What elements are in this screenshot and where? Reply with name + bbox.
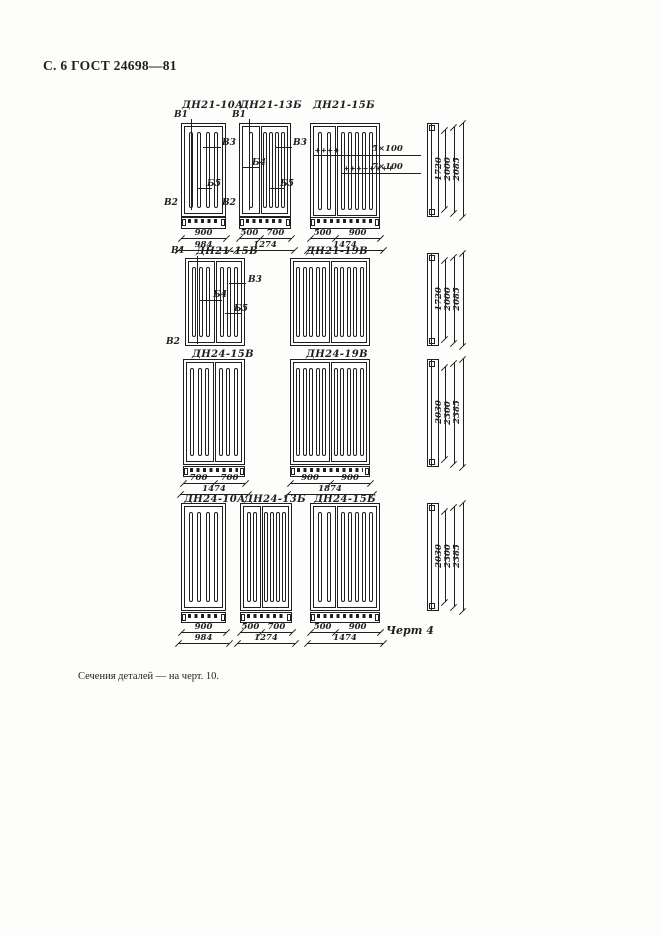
door-panel-slat <box>318 132 322 210</box>
door-label-dn21-15v: ДН21-15В <box>196 246 258 257</box>
plan-end-block <box>375 219 379 226</box>
section-mark-label: В2 <box>166 337 180 347</box>
height-dim-value: 2385 <box>452 392 462 432</box>
door-leaf <box>293 261 330 343</box>
door-leaf <box>188 261 215 343</box>
door-panel-slat <box>309 267 313 337</box>
overall-width-dim-value: 1874 <box>318 484 342 494</box>
profile-inner-line <box>431 124 432 216</box>
door-panel-slat <box>340 267 344 337</box>
dim-tick <box>450 461 457 468</box>
overall-width-dim-value: 1474 <box>202 484 226 494</box>
door-panel-slat <box>214 512 218 602</box>
door-panel-slat <box>360 267 364 337</box>
door-leaf <box>337 506 377 608</box>
door-panel-slat <box>309 368 313 456</box>
footnote-text: Сечения деталей — на черт. 10. <box>78 671 219 682</box>
door-panel-slat <box>353 368 357 456</box>
door-panel-slat <box>263 132 267 208</box>
door-panel-slat <box>269 132 273 208</box>
leaf-width-dim-value: 500 <box>241 228 259 238</box>
door-panel-slat <box>197 132 201 208</box>
door-drawing-dn21-19v <box>290 258 370 346</box>
overall-width-dim-line <box>307 643 383 644</box>
section-mark-label: В1 <box>174 110 188 120</box>
section-mark-label: Б4 <box>252 158 266 168</box>
plan-hatch <box>188 219 219 223</box>
door-panel-slat <box>303 267 307 337</box>
door-panel-slat <box>206 267 210 337</box>
dim-tick <box>459 343 466 350</box>
leaf-width-dim-value: 700 <box>221 473 239 483</box>
plan-end-block <box>182 219 186 226</box>
leaf-width-dim-value: 500 <box>314 228 332 238</box>
dim-tick <box>226 640 233 647</box>
door-leaf <box>184 126 223 214</box>
section-mark-line <box>191 119 192 210</box>
leaf-width-dim-value: 700 <box>268 622 286 632</box>
door-leaf <box>293 362 330 462</box>
dim-tick <box>450 210 457 217</box>
door-leaf <box>243 506 261 608</box>
plan-hatch <box>247 614 285 618</box>
dim-tick <box>377 235 384 242</box>
plan-end-block <box>241 614 245 621</box>
door-panel-slat <box>206 132 210 208</box>
door-panel-slat <box>341 512 345 602</box>
section-mark-line <box>197 256 198 344</box>
door-panel-slat <box>296 368 300 456</box>
door-panel-slat <box>199 267 203 337</box>
door-panel-slat <box>347 267 351 337</box>
height-dim-value: 2085 <box>452 279 462 319</box>
dim-tick <box>459 608 466 615</box>
door-leaf <box>261 126 288 214</box>
dim-tick <box>289 629 296 636</box>
door-panel-slat <box>227 267 231 337</box>
door-leaf <box>215 362 243 462</box>
dim-tick <box>450 340 457 347</box>
door-panel-slat <box>334 368 338 456</box>
height-dim-line <box>463 359 464 467</box>
door-panel-slat <box>226 368 230 456</box>
dim-tick <box>223 235 230 242</box>
door-panel-slat <box>214 132 218 208</box>
dim-tick <box>450 604 457 611</box>
plan-hatch <box>297 468 363 472</box>
door-panel-slat <box>281 132 285 208</box>
height-dim-line <box>463 253 464 346</box>
plan-end-block <box>240 219 244 226</box>
dim-tick <box>367 480 374 487</box>
overall-width-dim-value: 1274 <box>254 633 278 643</box>
door-panel-slat <box>316 368 320 456</box>
overall-width-dim-line <box>237 643 295 644</box>
dim-tick <box>288 235 295 242</box>
dim-tick <box>291 247 298 254</box>
leaf-width-dim-line <box>239 238 291 239</box>
dim-tick <box>441 599 448 606</box>
section-mark-label: Б5 <box>234 304 248 314</box>
section-mark-line <box>229 283 246 284</box>
door-panel-slat <box>276 512 280 602</box>
dim-tick <box>242 480 249 487</box>
plan-hatch <box>317 614 373 618</box>
section-mark-label: Б4 <box>213 290 227 300</box>
plan-hatch <box>190 468 238 472</box>
profile-top-block <box>429 361 435 367</box>
door-panel-slat <box>282 512 286 602</box>
leaf-width-dim-value: 900 <box>349 228 367 238</box>
door-panel-slat <box>264 512 268 602</box>
door-drawing-dn24-10a <box>181 503 226 611</box>
dim-tick <box>292 640 299 647</box>
leaf-width-dim-value: 900 <box>349 622 367 632</box>
door-panel-slat <box>327 512 331 602</box>
section-mark-label: Б5 <box>280 179 294 189</box>
door-panel-slat <box>247 512 251 602</box>
section-mark-line <box>342 173 421 174</box>
leaf-width-dim-value: 900 <box>195 228 213 238</box>
leaf-width-dim-value: 900 <box>301 473 319 483</box>
figure-caption: Черт 4 <box>386 624 434 637</box>
plan-end-block <box>375 614 379 621</box>
door-panel-slat <box>348 512 352 602</box>
profile-bottom-block <box>429 603 435 609</box>
nail-tick-marks: ++++ <box>315 147 340 155</box>
door-panel-slat <box>322 267 326 337</box>
plan-end-block <box>184 468 188 475</box>
door-panel-slat <box>334 267 338 337</box>
section-mark-label: В1 <box>232 110 246 120</box>
plan-hatch <box>188 614 219 618</box>
plan-end-block <box>221 219 225 226</box>
profile-top-block <box>429 505 435 511</box>
height-dim-value: 2085 <box>452 149 462 189</box>
door-drawing-dn24-15v <box>183 359 245 465</box>
door-panel-slat <box>340 368 344 456</box>
overall-width-dim-value: 1474 <box>333 633 357 643</box>
height-dim-value: 2385 <box>452 536 462 576</box>
leaf-width-dim-value: 700 <box>267 228 285 238</box>
door-leaf <box>262 506 289 608</box>
leaf-width-dim-value: 700 <box>190 473 208 483</box>
dim-tick <box>380 247 387 254</box>
dim-tick <box>441 206 448 213</box>
door-panel-slat <box>318 512 322 602</box>
plan-end-block <box>240 468 244 475</box>
door-leaf <box>331 261 368 343</box>
door-drawing-dn21-10a <box>181 123 226 217</box>
dim-tick <box>459 464 466 471</box>
leaf-width-dim-line <box>310 238 380 239</box>
profile-inner-line <box>431 360 432 466</box>
door-leaf <box>184 506 223 608</box>
door-panel-slat <box>192 267 196 337</box>
overall-width-dim-value: 984 <box>195 633 213 643</box>
height-dim-line <box>463 123 464 217</box>
door-panel-slat <box>197 512 201 602</box>
dim-tick <box>459 214 466 221</box>
door-panel-slat <box>205 368 209 456</box>
section-mark-line <box>200 300 222 301</box>
door-leaf <box>331 362 368 462</box>
door-drawing-dn21-15v <box>185 258 245 346</box>
profile-bottom-block <box>429 209 435 215</box>
door-panel-slat <box>303 368 307 456</box>
dim-tick <box>441 456 448 463</box>
door-leaf <box>242 126 260 214</box>
door-leaf <box>313 126 336 216</box>
door-panel-slat <box>316 267 320 337</box>
section-mark-label: В3 <box>222 138 236 148</box>
door-leaf <box>313 506 336 608</box>
nail-spacing-annotation: 7×100 <box>372 162 403 172</box>
leaf-width-dim-value: 500 <box>242 622 260 632</box>
door-panel-slat <box>234 368 238 456</box>
section-mark-label: В3 <box>293 138 307 148</box>
profile-top-block <box>429 255 435 261</box>
profile-inner-line <box>431 254 432 345</box>
dim-tick <box>380 640 387 647</box>
door-panel-slat <box>189 512 193 602</box>
door-panel-slat <box>322 368 326 456</box>
door-drawing-dn24-15b <box>310 503 380 611</box>
profile-top-block <box>429 125 435 131</box>
dim-tick <box>441 336 448 343</box>
section-mark-label: В1 <box>171 246 185 256</box>
leaf-width-dim-value: 900 <box>195 622 213 632</box>
plan-end-block <box>182 614 186 621</box>
leaf-width-dim-line <box>181 238 226 239</box>
door-panel-slat <box>206 512 210 602</box>
profile-bottom-block <box>429 338 435 344</box>
door-label-dn21-19v: ДН21-19В <box>306 246 368 257</box>
dim-tick <box>223 629 230 636</box>
plan-hatch <box>246 219 284 223</box>
height-dim-line <box>463 503 464 611</box>
section-mark-line <box>314 155 421 156</box>
plan-end-block <box>291 468 295 475</box>
door-panel-slat <box>270 512 274 602</box>
door-panel-slat <box>253 512 257 602</box>
door-panel-slat <box>362 512 366 602</box>
door-panel-slat <box>275 132 279 208</box>
plan-end-block <box>311 614 315 621</box>
door-panel-slat <box>347 368 351 456</box>
section-mark-label: Б5 <box>207 179 221 189</box>
document-page: С. 6 ГОСТ 24698—81 Черт 4 ДН21-10АВ1В3Б5… <box>0 0 661 936</box>
door-leaf <box>216 261 243 343</box>
section-mark-label: В2 <box>222 198 236 208</box>
plan-end-block <box>311 219 315 226</box>
plan-end-block <box>365 468 369 475</box>
nail-spacing-annotation: 5×100 <box>372 144 403 154</box>
door-panel-slat <box>360 368 364 456</box>
section-mark-line <box>203 147 221 148</box>
door-panel-slat <box>353 267 357 337</box>
door-drawing-dn24-13b <box>240 503 292 611</box>
door-panel-slat <box>219 368 223 456</box>
door-panel-slat <box>220 267 224 337</box>
door-leaf <box>186 362 214 462</box>
door-panel-slat <box>234 267 238 337</box>
plan-end-block <box>286 219 290 226</box>
plan-end-block <box>221 614 225 621</box>
section-mark-line <box>249 119 250 210</box>
door-drawing-dn21-13b <box>239 123 291 217</box>
door-drawing-dn24-19v <box>290 359 370 465</box>
door-panel-slat <box>327 132 331 210</box>
plan-end-block <box>287 614 291 621</box>
profile-inner-line <box>431 504 432 610</box>
door-panel-slat <box>369 512 373 602</box>
door-panel-slat <box>355 512 359 602</box>
profile-bottom-block <box>429 459 435 465</box>
door-panel-slat <box>296 267 300 337</box>
dim-tick <box>377 629 384 636</box>
figure-drawing: Черт 4 ДН21-10АВ1В3Б5В2900984ДН21-13БВ1В… <box>0 0 661 936</box>
door-panel-slat <box>190 368 194 456</box>
plan-hatch <box>317 219 373 223</box>
door-label-dn21-15b: ДН21-15Б <box>313 100 375 111</box>
leaf-width-dim-value: 500 <box>314 622 332 632</box>
section-mark-label: В2 <box>164 198 178 208</box>
section-mark-label: В3 <box>248 275 262 285</box>
door-panel-slat <box>198 368 202 456</box>
door-label-dn21-13b: ДН21-13Б <box>240 100 302 111</box>
overall-width-dim-line <box>178 643 229 644</box>
section-mark-line <box>275 147 292 148</box>
leaf-width-dim-value: 900 <box>341 473 359 483</box>
